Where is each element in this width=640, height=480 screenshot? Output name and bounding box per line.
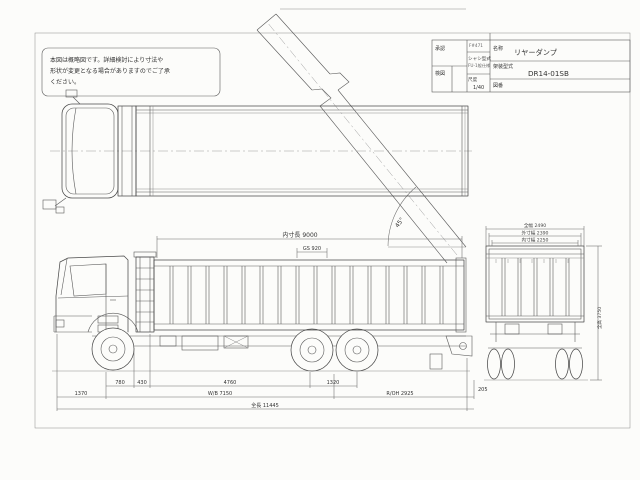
- cab-side: [54, 256, 138, 332]
- side-view: 内寸長 9000 GS 920 780 430 4760 1320: [52, 231, 488, 411]
- dump-body-side: [154, 258, 466, 332]
- break-mark: [330, 73, 349, 90]
- body-ribs: [170, 266, 443, 324]
- mirror-top-icon: [66, 90, 80, 104]
- dim-front-section: GS 920: [297, 246, 327, 258]
- name-label: 名称: [493, 45, 503, 52]
- cab-window: [70, 264, 106, 296]
- approval-cell: 承認: [435, 45, 445, 52]
- rear-view: 全幅 2490 外寸幅 2390 内寸幅 2250 全高 3750: [484, 222, 603, 380]
- rear-chassis: [488, 322, 582, 348]
- note-box: 本図は概略図です。詳細検討により寸法や 形状が変更となる場合がありますのでご了承…: [42, 48, 220, 96]
- dim-total-length: 全長 11445: [57, 402, 474, 409]
- chassis-model-cell: シャシ型式 FU-1般仕様: [468, 55, 491, 69]
- dim-inner-width: 内寸幅 2250: [492, 237, 578, 247]
- dim-205: 205: [478, 387, 488, 393]
- cab-step: [98, 316, 118, 323]
- mirror-bottom-icon: [43, 198, 66, 213]
- name-value: リヤーダンプ: [514, 48, 558, 57]
- chassis-model-value: FU-1般仕様: [468, 62, 491, 69]
- svg-text:全高 3750: 全高 3750: [596, 307, 603, 329]
- drawing-no-cell: 図番: [493, 82, 503, 89]
- front-gate: [134, 252, 156, 332]
- headlight: [56, 320, 64, 327]
- rear-post: [456, 258, 466, 332]
- note-line-2: 形状が変更となる場合がありますのでご了承: [50, 67, 170, 75]
- mud-flap: [430, 354, 442, 369]
- note-line-1: 本図は概略図です。詳細検討により寸法や: [50, 56, 163, 64]
- check-cell: 検図: [435, 70, 445, 77]
- plan-view: [43, 90, 472, 213]
- dim-1320: 1320: [327, 380, 340, 386]
- body-model-value: DR14-01SB: [528, 69, 569, 78]
- scale-cell: 尺度 1/40: [468, 76, 484, 91]
- body-model-label: 架装型式: [493, 63, 513, 70]
- dim-overall-height: 全高 3750: [586, 246, 603, 380]
- dim-4760: 4760: [224, 380, 237, 386]
- rear-ribs: [502, 258, 569, 316]
- scale-label: 尺度: [468, 76, 478, 83]
- dim-1370: 1370: [75, 391, 88, 397]
- svg-text:全幅 2490: 全幅 2490: [524, 222, 546, 229]
- title-block: 承認 検図 F#471 シャシ型式 FU-1般仕様 尺度 1/40 名称 リヤー…: [432, 33, 630, 92]
- svg-text:外寸幅 2390: 外寸幅 2390: [522, 230, 549, 237]
- dim-780: 780: [115, 380, 125, 386]
- dim-roh: R/OH 2925: [386, 391, 413, 397]
- svg-text:内寸幅 2250: 内寸幅 2250: [522, 237, 549, 244]
- body-model-cell: 架装型式 DR14-01SB: [493, 63, 569, 78]
- fuel-tank: [182, 336, 218, 350]
- chassis-frame: [92, 336, 472, 369]
- name-cell: 名称 リヤーダンプ: [493, 45, 558, 57]
- approval-label: 承認: [435, 45, 445, 52]
- drawing-sheet: 本図は概略図です。詳細検討により寸法や 形状が変更となる場合がありますのでご了承…: [0, 0, 640, 480]
- rear-wheel-2: [336, 329, 378, 371]
- tip-angle-label: 45°: [394, 216, 406, 229]
- code-text: F#471: [469, 43, 483, 48]
- front-wheel: [92, 328, 134, 370]
- rear-tick-row: [496, 259, 568, 263]
- svg-text:GS 920: GS 920: [303, 246, 321, 252]
- dim-row-wheelbase: 1370 W/B 7150 R/OH 2925 205: [57, 387, 488, 397]
- svg-text:内寸長 9000: 内寸長 9000: [282, 231, 317, 239]
- tool-box: [160, 336, 176, 346]
- drawing-no-label: 図番: [493, 82, 503, 89]
- dump-body-rear: [486, 246, 584, 322]
- dim-row-axles: 780 430 4760 1320: [106, 380, 357, 386]
- dim-430: 430: [137, 380, 147, 386]
- rear-tires: [488, 349, 583, 379]
- rear-wheel-1: [291, 329, 333, 371]
- dim-inner-length: 内寸長 9000: [157, 231, 462, 258]
- note-line-3: ください。: [50, 79, 80, 86]
- scale-value: 1/40: [473, 85, 484, 91]
- dim-wb: W/B 7150: [208, 391, 232, 397]
- check-label: 検図: [435, 70, 445, 77]
- truck-drawing-svg: 本図は概略図です。詳細検討により寸法や 形状が変更となる場合がありますのでご了承…: [0, 0, 640, 480]
- chassis-model-label: シャシ型式: [468, 55, 491, 62]
- svg-text:全長 11445: 全長 11445: [251, 402, 279, 409]
